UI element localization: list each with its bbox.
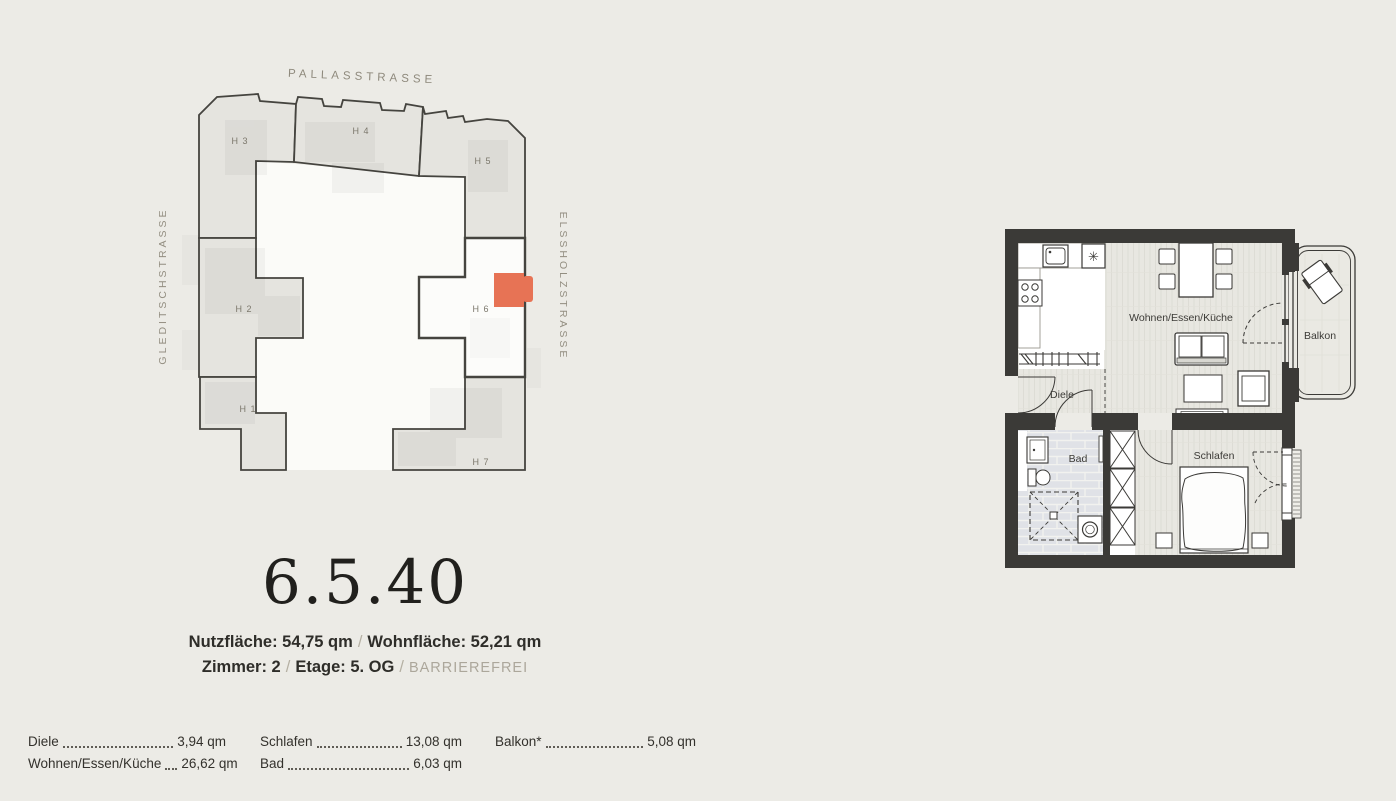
dotted-leader: [63, 746, 173, 748]
separator: /: [394, 658, 409, 676]
selected-unit-marker[interactable]: [494, 273, 533, 307]
unit-number: 6.5.40: [150, 546, 580, 620]
building-label-h4: H 4: [352, 126, 369, 136]
room-label: Balkon*: [495, 731, 542, 753]
dotted-leader: [546, 746, 644, 748]
unit-info: 6.5.40 Nutzfläche: 54,75 qm/Wohnfläche: …: [150, 546, 580, 681]
room-area-value: 5,08 qm: [647, 731, 696, 753]
room-area-value: 3,94 qm: [177, 731, 226, 753]
etage-value: Etage: 5. OG: [295, 658, 394, 676]
room-label: Diele: [28, 731, 59, 753]
room-area-row: Wohnen/Essen/Küche 26,62 qm: [28, 753, 226, 775]
kitchen-sink-icon: [1043, 245, 1068, 267]
mirror: [1099, 436, 1103, 462]
wohnflaeche-value: Wohnfläche: 52,21 qm: [367, 633, 541, 651]
label-bath: Bad: [1069, 453, 1088, 465]
nutzflaeche-value: Nutzfläche: 54,75 qm: [189, 633, 353, 651]
nightstand-right: [1252, 533, 1268, 548]
bath-counter: [1018, 431, 1027, 491]
room-area-value: 13,08 qm: [406, 731, 462, 753]
apartment-floor-plan: ✳: [985, 215, 1385, 580]
building-label-h1: H 1: [239, 404, 256, 414]
street-label-gleditschstrasse: GLEDITSCHSTRASSE: [157, 207, 169, 364]
room-table-column: Diele 3,94 qm Wohnen/Essen/Küche 26,62 q…: [28, 731, 226, 775]
room-area-row: Bad 6,03 qm: [260, 753, 462, 775]
room-table-column: Schlafen 13,08 qm Bad 6,03 qm: [260, 731, 462, 775]
street-label-pallasstrasse: PALLASSTRASSE: [288, 68, 437, 86]
building-label-h6: H 6: [472, 304, 489, 314]
svg-text:✳: ✳: [1088, 249, 1099, 264]
site-plan: PALLASSTRASSE GLEDITSCHSTRASSE ELSSHOLZS…: [140, 45, 600, 490]
dotted-leader: [288, 768, 409, 770]
area-line: Nutzfläche: 54,75 qm/Wohnfläche: 52,21 q…: [150, 630, 580, 655]
balcony: [1293, 246, 1355, 399]
label-balcony: Balkon: [1304, 330, 1336, 342]
label-bedroom: Schlafen: [1194, 450, 1235, 462]
built-in-wardrobe: [1110, 431, 1135, 545]
floorplan-page: PALLASSTRASSE GLEDITSCHSTRASSE ELSSHOLZS…: [0, 0, 1396, 801]
dotted-leader: [165, 768, 177, 770]
building-label-h3: H 3: [231, 136, 248, 146]
toilet-icon: [1028, 469, 1050, 486]
fridge-icon: ✳: [1082, 244, 1105, 268]
zimmer-value: Zimmer: 2: [202, 658, 281, 676]
coat-rack-icon: [1019, 350, 1104, 369]
label-hall: Diele: [1050, 389, 1074, 401]
unit-details: Nutzfläche: 54,75 qm/Wohnfläche: 52,21 q…: [150, 630, 580, 681]
barrierefrei-badge: BARRIEREFREI: [409, 660, 528, 676]
building-label-h5: H 5: [474, 156, 491, 166]
stove-icon: [1018, 280, 1042, 306]
rooms-line: Zimmer: 2/Etage: 5. OG/BARRIEREFREI: [150, 655, 580, 681]
room-area-row: Schlafen 13,08 qm: [260, 731, 462, 753]
separator: /: [281, 658, 296, 676]
room-table-column: Balkon* 5,08 qm: [495, 731, 696, 753]
building-label-h2: H 2: [235, 304, 252, 314]
room-areas-table: Diele 3,94 qm Wohnen/Essen/Küche 26,62 q…: [0, 731, 760, 791]
separator: /: [353, 633, 368, 651]
balcony-glass-door: [1282, 269, 1289, 368]
dotted-leader: [317, 746, 402, 748]
room-area-row: Balkon* 5,08 qm: [495, 731, 696, 753]
room-area-value: 26,62 qm: [181, 753, 237, 775]
room-label: Bad: [260, 753, 284, 775]
room-label: Schlafen: [260, 731, 313, 753]
room-label: Wohnen/Essen/Küche: [28, 753, 161, 775]
washing-machine-icon: [1078, 516, 1102, 543]
street-label-elssholzstrasse: ELSSHOLZSTRASSE: [557, 212, 569, 361]
room-area-value: 6,03 qm: [413, 753, 462, 775]
sofa: [1175, 333, 1228, 365]
label-living: Wohnen/Essen/Küche: [1129, 312, 1233, 324]
bath-sink-icon: [1027, 437, 1048, 463]
coffee-table: [1184, 375, 1222, 402]
building-label-h7: H 7: [472, 457, 489, 467]
nightstand-left: [1156, 533, 1172, 548]
room-area-row: Diele 3,94 qm: [28, 731, 226, 753]
armchair: [1238, 371, 1269, 406]
